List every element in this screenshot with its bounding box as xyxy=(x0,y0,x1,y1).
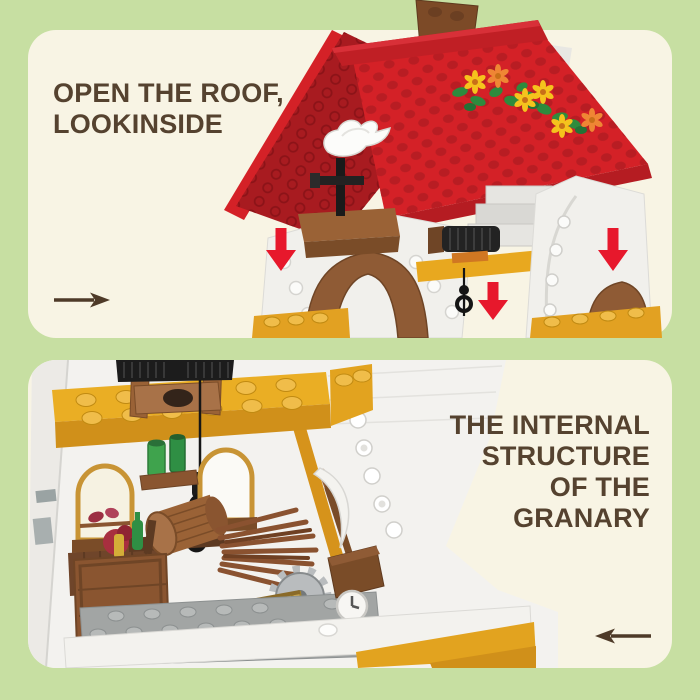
left-arrow-icon xyxy=(593,626,653,646)
bottom-heading-line3: OF THE xyxy=(450,472,650,503)
clock-face xyxy=(337,591,367,621)
down-arrow-icon xyxy=(478,282,508,320)
bottom-heading-line4: GRANARY xyxy=(450,503,650,534)
page: OPEN THE ROOF, LOOKINSIDE xyxy=(0,0,700,700)
bottom-heading-line1: THE INTERNAL xyxy=(450,410,650,441)
bottom-heading: THE INTERNAL STRUCTURE OF THE GRANARY xyxy=(450,410,650,534)
bottom-panel: THE INTERNAL STRUCTURE OF THE GRANARY xyxy=(28,360,672,668)
right-arrow-icon xyxy=(52,290,112,310)
granary-exterior-photo xyxy=(220,0,672,338)
bottom-heading-line2: STRUCTURE xyxy=(450,441,650,472)
